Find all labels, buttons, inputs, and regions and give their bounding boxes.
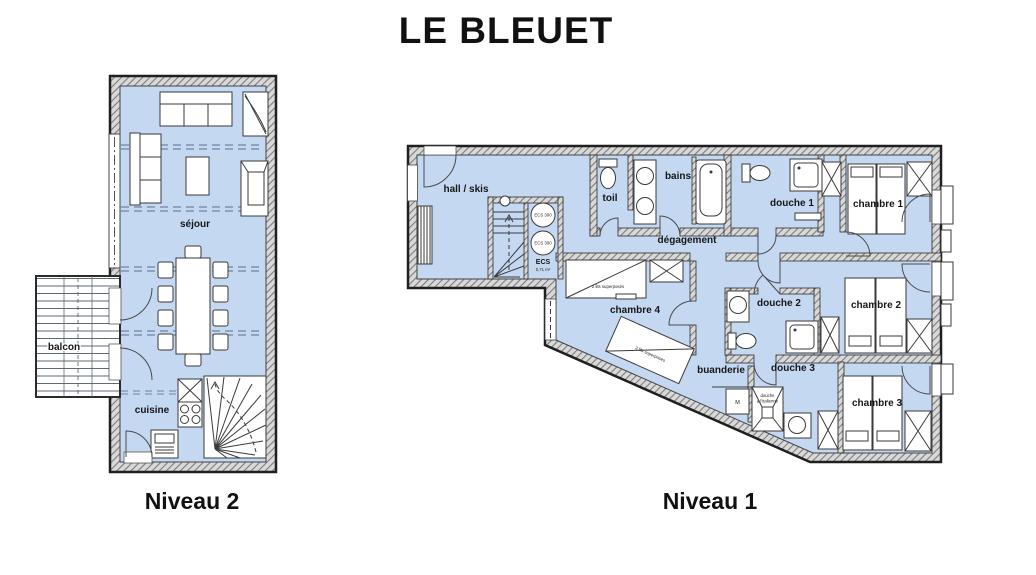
window	[932, 190, 941, 396]
water-heater-label: ECS 300	[534, 241, 552, 246]
window-sill	[941, 186, 953, 394]
window	[408, 165, 418, 201]
walkin-shower-label: à l'italienne	[757, 399, 779, 404]
walkin-shower: douche à l'italienne	[752, 387, 783, 431]
page: LE BLEUET	[0, 0, 1036, 575]
water-heater: ECS 300	[531, 231, 555, 255]
toilet	[728, 333, 756, 349]
room-label-douche2: douche 2	[757, 298, 801, 309]
wardrobe	[907, 162, 932, 196]
caption-niveau-2: Niveau 2	[145, 488, 240, 515]
ski-rack	[418, 206, 432, 264]
toilet	[599, 159, 617, 189]
bunk-bed: 2 lits superposés	[566, 260, 646, 299]
wardrobe	[821, 317, 839, 353]
walkin-shower-label: douche	[760, 393, 775, 398]
wardrobe	[818, 411, 838, 449]
room-label-sejour: séjour	[180, 219, 210, 230]
room-label-hall: hall / skis	[443, 184, 488, 195]
coffee-table	[186, 157, 209, 195]
bench	[795, 213, 821, 220]
room-label-bains: bains	[665, 171, 692, 182]
kitchen-sink	[178, 379, 202, 402]
room-area-ecs: 0,71 m²	[536, 267, 551, 272]
room-label-douche1: douche 1	[770, 198, 814, 209]
room-label-ecs: ECS	[536, 259, 551, 266]
shower-tray	[790, 159, 822, 191]
room-label-cuisine: cuisine	[135, 405, 170, 416]
door-opening	[124, 452, 152, 463]
oven-unit	[151, 430, 178, 458]
entry-door-opening	[424, 146, 456, 155]
room-label-degagement: dégagement	[658, 235, 718, 246]
room-label-buanderie: buanderie	[697, 365, 745, 376]
room-label-chambre4: chambre 4	[610, 305, 660, 316]
washing-machine: M	[726, 389, 749, 414]
washbasin	[727, 291, 749, 322]
room-label-chambre1: chambre 1	[853, 199, 903, 210]
caption-niveau-1: Niveau 1	[663, 488, 758, 515]
floorplan-niveau-1: ECS 300 ECS 300 ECS 0,71 m²	[408, 146, 954, 462]
shower-tray	[786, 321, 818, 353]
water-heater: ECS 300	[531, 203, 555, 227]
wardrobe	[650, 260, 683, 282]
water-heater-label: ECS 300	[534, 213, 552, 218]
room-label-balcon: balcon	[48, 342, 80, 353]
floorplan-niveau-2: séjour cuisine balcon	[36, 76, 276, 472]
dining-table	[176, 258, 210, 354]
corner-unit	[243, 92, 268, 136]
sofa	[160, 92, 232, 126]
washing-machine-label: M	[735, 400, 740, 406]
bed	[873, 376, 902, 450]
bed	[843, 376, 872, 450]
washbasin	[784, 413, 811, 438]
room-label-chambre3: chambre 3	[852, 398, 902, 409]
balcony-deck	[36, 276, 120, 397]
wardrobe	[822, 162, 841, 196]
armchair	[241, 161, 268, 216]
wardrobe	[905, 411, 931, 451]
bed	[845, 278, 875, 353]
wardrobe	[907, 319, 932, 353]
bathtub	[696, 160, 726, 224]
balcony-door-opening	[109, 344, 121, 380]
toilet	[742, 164, 770, 182]
bunk-bed-label: 2 lits superposés	[592, 284, 624, 289]
sofa	[130, 133, 161, 205]
stove	[178, 402, 202, 427]
room-label-toil: toil	[603, 193, 618, 204]
balcony-door-opening	[109, 288, 121, 324]
washbasin-double	[634, 160, 656, 224]
bed	[876, 278, 906, 353]
stair-newel	[500, 196, 510, 206]
staircase	[204, 376, 266, 458]
room-label-chambre2: chambre 2	[851, 300, 901, 311]
room-label-douche3: douche 3	[771, 363, 815, 374]
